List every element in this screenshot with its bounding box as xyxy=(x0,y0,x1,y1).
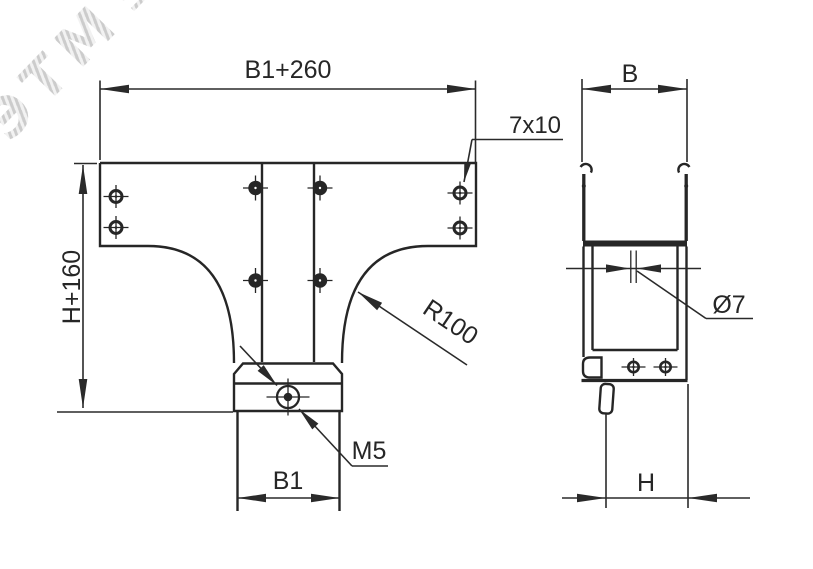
flange-hole xyxy=(448,182,473,205)
side-channel-walls xyxy=(584,247,687,381)
arrowhead-7x10 xyxy=(464,163,471,182)
front-body-outline xyxy=(100,163,476,511)
leader-d7-line xyxy=(637,271,706,319)
stem-holes xyxy=(243,176,333,294)
hole-center-dot xyxy=(115,195,118,198)
side-view xyxy=(581,164,690,414)
side-top-plate xyxy=(583,241,687,247)
base-hole xyxy=(654,358,678,376)
hole-pinhole xyxy=(254,187,256,189)
hole-center-dot xyxy=(459,227,462,230)
dim-label-side-top-width: B xyxy=(622,60,639,88)
hole-pinhole xyxy=(254,279,256,281)
side-hole-ticks xyxy=(631,251,636,284)
arrowhead-d7-right xyxy=(637,264,661,272)
drawing-canvas: ЭТМ ☰ xyxy=(0,0,813,569)
dim-label-hole-diameter: Ø7 xyxy=(712,291,745,319)
dim-label-bottom-width: B1 xyxy=(273,467,304,495)
arrowhead-r100 xyxy=(358,292,382,310)
hole-pinhole xyxy=(319,187,321,189)
flange-hole xyxy=(104,185,129,208)
flange-hole xyxy=(104,216,129,239)
dimension-labels: B1+260 H+160 7x10 R100 M5 B1 B Ø7 H xyxy=(58,56,746,497)
dim-label-top-width: B1+260 xyxy=(245,56,332,84)
hole-center-dot xyxy=(459,192,462,195)
arrowhead-b1-left xyxy=(238,494,267,502)
arrowhead-h-left xyxy=(577,494,606,502)
hole-center-dot xyxy=(632,366,634,368)
dim-label-slot-size: 7x10 xyxy=(509,112,561,139)
arrowhead-b1-right xyxy=(311,494,340,502)
front-view xyxy=(100,163,476,511)
flange-holes xyxy=(104,182,473,240)
arrowhead-h-right xyxy=(688,494,717,502)
arrowhead-b1260-left xyxy=(100,85,129,94)
dim-label-fillet-radius: R100 xyxy=(418,294,483,351)
arrowhead-b-right xyxy=(658,85,687,94)
stem-hole xyxy=(243,268,268,293)
side-left-hook-curl xyxy=(581,164,592,173)
dimension-lines xyxy=(57,79,753,508)
dim-label-left-height: H+160 xyxy=(58,250,86,324)
flange-hole xyxy=(448,217,473,240)
arrowheads xyxy=(79,85,717,503)
arrowhead-h160-bottom xyxy=(79,379,88,408)
hole-pinhole xyxy=(319,279,321,281)
arrowhead-b1260-right xyxy=(447,85,476,94)
stem-hole xyxy=(243,176,268,201)
arrowhead-d7-left xyxy=(606,264,630,272)
side-foot-step xyxy=(583,358,602,378)
side-latch-tab xyxy=(599,384,614,414)
hole-center-dot xyxy=(664,366,666,368)
stem-hole xyxy=(308,268,333,293)
side-base-holes xyxy=(622,358,678,376)
arrowhead-b-left xyxy=(582,85,611,94)
base-hole xyxy=(622,358,646,376)
dim-label-side-bottom-height: H xyxy=(637,469,655,497)
side-right-hook-curl xyxy=(678,164,689,173)
hole-center-dot xyxy=(115,226,118,229)
technical-drawing: B1+260 H+160 7x10 R100 M5 B1 B Ø7 H xyxy=(0,0,813,569)
arrowhead-h160-top xyxy=(79,165,88,194)
stem-hole xyxy=(308,176,333,201)
dim-label-thread-size: M5 xyxy=(352,437,387,465)
